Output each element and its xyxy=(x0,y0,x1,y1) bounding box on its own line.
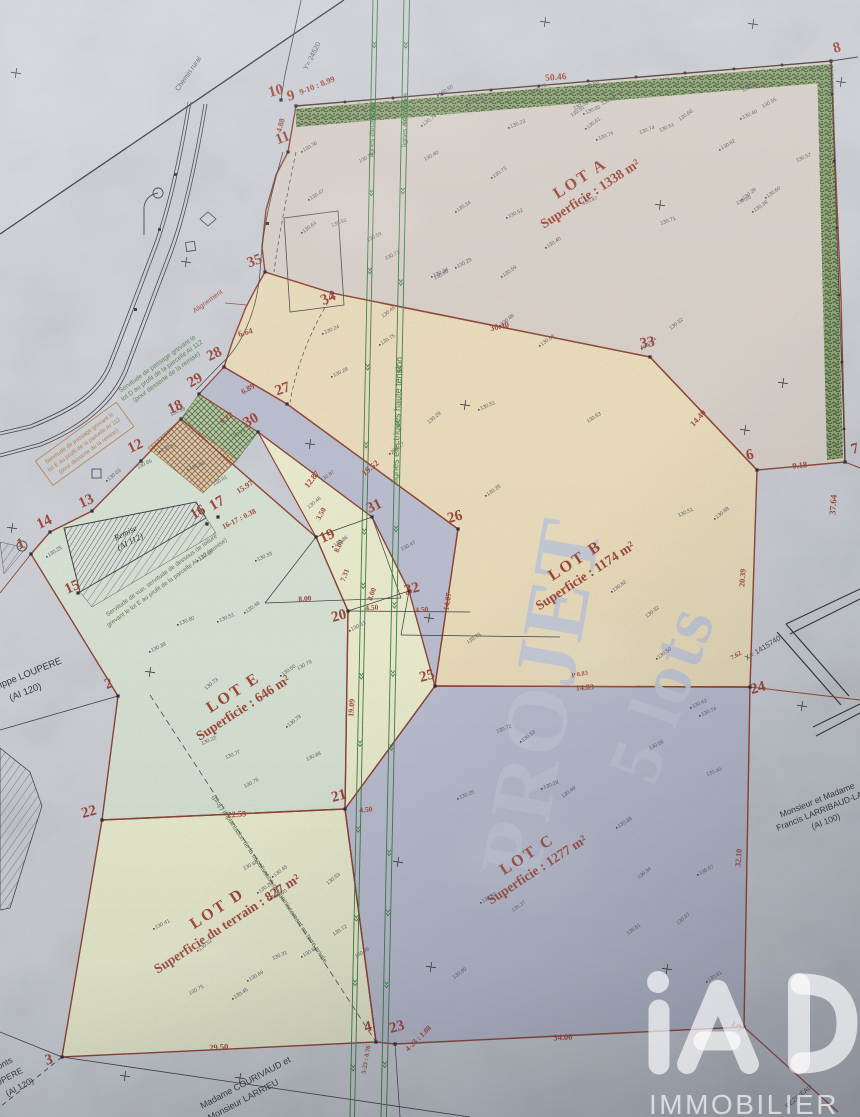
svg-text:IMMOBILIER: IMMOBILIER xyxy=(649,1089,839,1117)
